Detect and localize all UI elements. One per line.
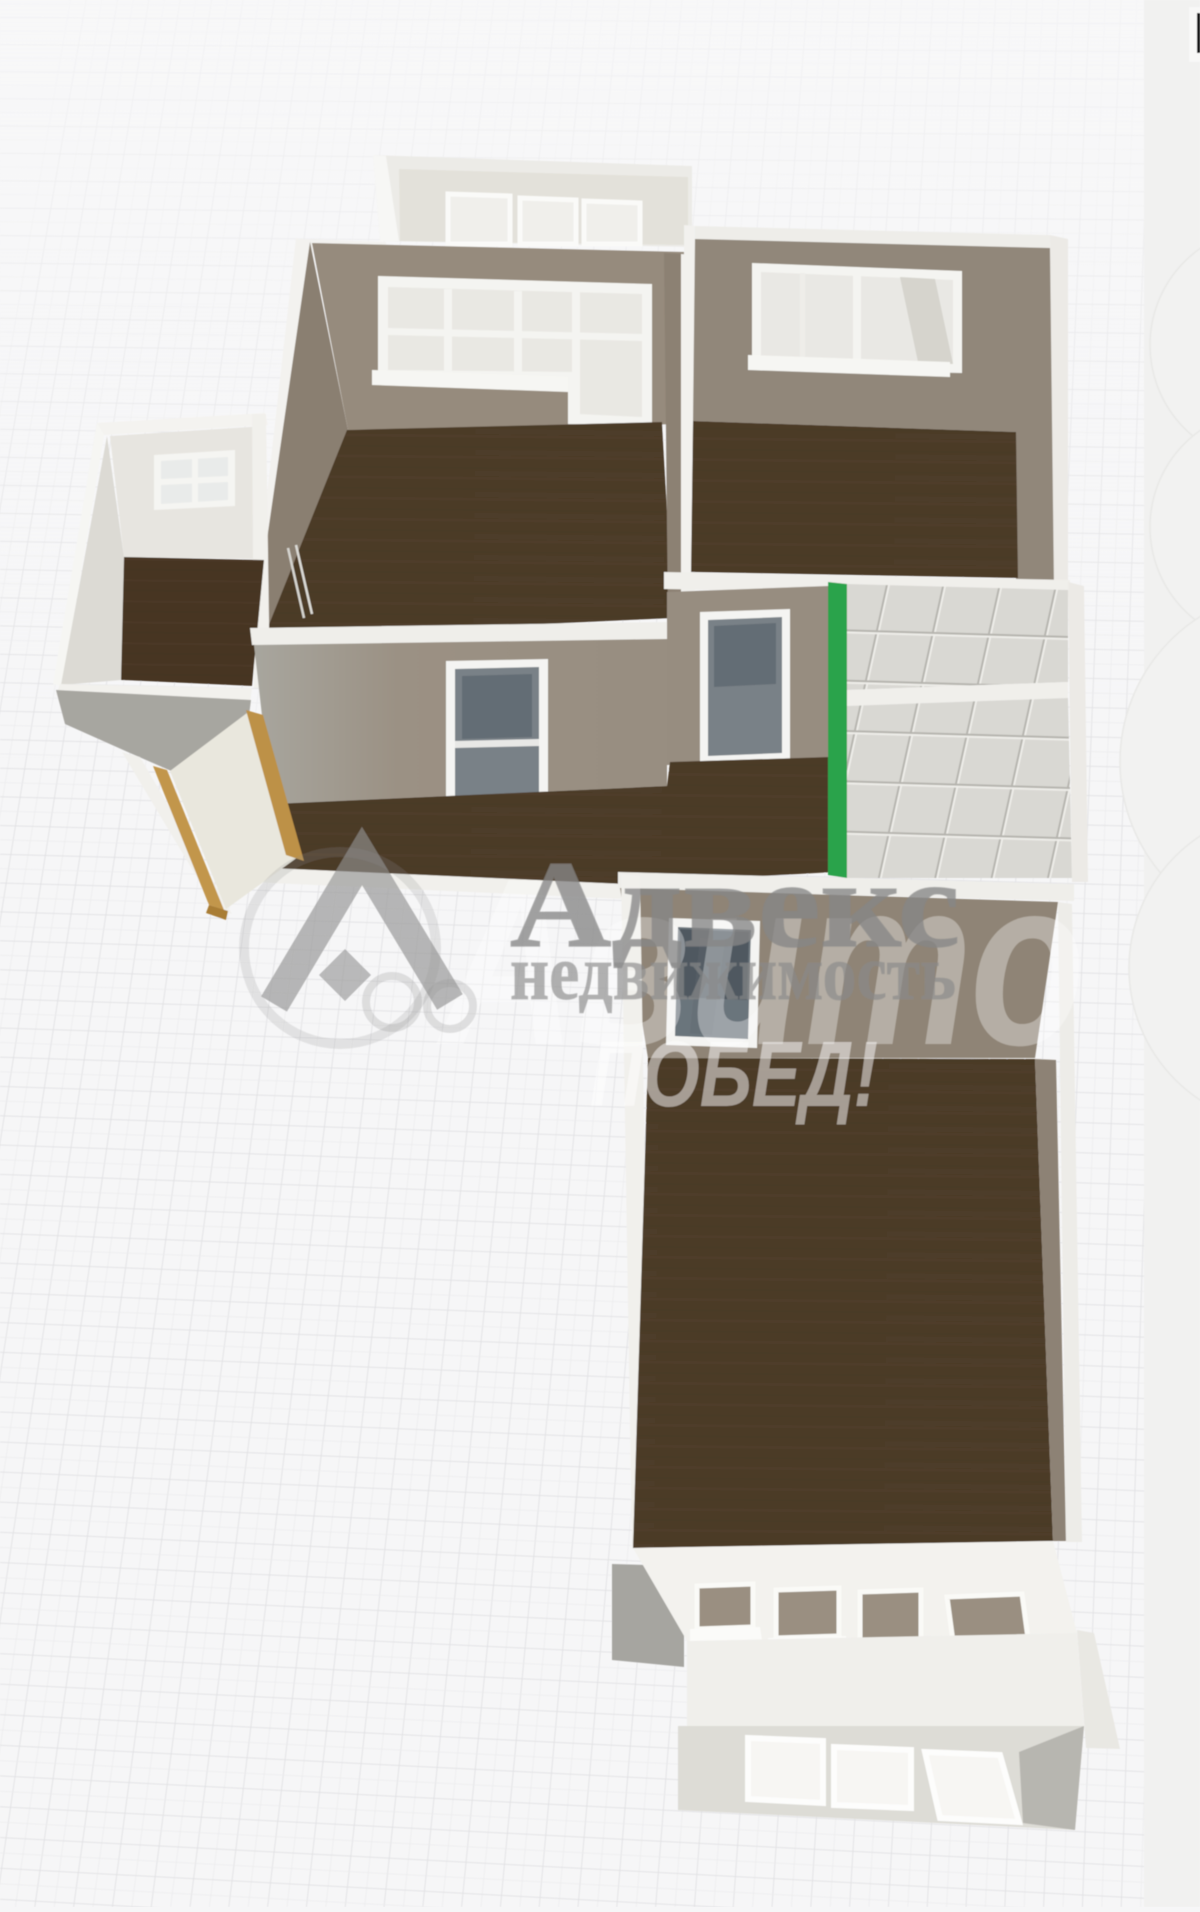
svg-text:недвижимость: недвижимость	[510, 929, 956, 1016]
svg-text:ПОБЕД!: ПОБЕД!	[590, 1022, 878, 1126]
